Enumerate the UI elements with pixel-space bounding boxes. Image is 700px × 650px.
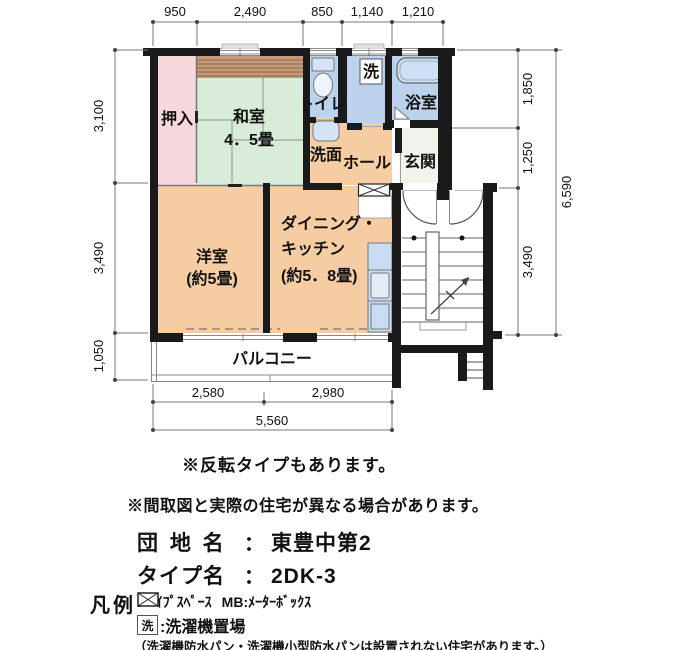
estate-name-label: 団 地 名 [137, 527, 237, 557]
note-may-differ: ※間取図と実際の住宅が異なる場合があります。 [127, 492, 488, 516]
window-toilet [310, 49, 336, 56]
label-toilet: トイレ [298, 96, 346, 113]
entrance-door-arc [403, 191, 436, 224]
wall-stair-right [483, 183, 493, 390]
stair-floor-line [420, 322, 466, 330]
toilet-tank [312, 58, 334, 71]
window-laundry [352, 49, 386, 56]
wall-stub-right [493, 331, 502, 339]
dim-left-1: 3,100 [91, 100, 106, 133]
wall-toilet-bottom-r [334, 117, 347, 123]
dim-top-4: 1,140 [351, 4, 384, 19]
stair-handrail [426, 232, 439, 320]
wall-dk-stair [392, 190, 401, 388]
pipe-space-icon [137, 592, 159, 607]
wall-western-dk [263, 183, 270, 333]
dim-right-3: 3,490 [520, 246, 535, 279]
toilet-bowl [314, 73, 333, 97]
wall-middle-1 [303, 183, 342, 190]
type-name-label: タイプ名 [137, 560, 237, 590]
wall-laundry-bath [385, 56, 392, 122]
label-hall: ホール [343, 154, 391, 172]
legend-laundry-text: :洗濯機置場 [160, 613, 245, 637]
exterior-steps [467, 362, 483, 378]
wall-bottom-3 [388, 333, 401, 342]
wall-door-stub [437, 183, 449, 200]
label-washitsu: 和室 [233, 107, 265, 126]
laundry-symbol-icon: 洗 [137, 615, 158, 635]
dim-bottom-total: 5,560 [256, 413, 289, 428]
label-balcony: バルコニー [232, 350, 312, 368]
dim-left-3: 1,050 [91, 340, 106, 373]
label-washitsu-size: 4．5畳 [224, 131, 274, 149]
washbasin [313, 121, 339, 141]
legend-title: 凡例 [90, 589, 136, 618]
dim-top-5: 1,210 [402, 4, 435, 19]
window-washitsu [220, 49, 260, 56]
label-washstand: 洗面 [310, 145, 342, 164]
legend-note: （洗濯機防水パン・洗濯機小型防水パンは設置されない住宅があります。） [134, 636, 553, 650]
wall-bottom-2 [283, 333, 317, 342]
dim-right-2: 1,250 [520, 142, 535, 175]
wall-bath-bottom-r [410, 120, 452, 128]
dim-bottom-2: 2,980 [312, 385, 345, 400]
label-dk-1: ダイニング・ [281, 214, 377, 233]
type-name-colon: ： [237, 560, 271, 589]
floor-plan: 押入 和室 4．5畳 トイレ 洗 浴室 洗面 ホール 玄関 洋室 (約5畳) ダ… [0, 0, 700, 445]
dim-bottom-1: 2,580 [192, 385, 225, 400]
estate-name-colon: ： [237, 527, 271, 556]
label-entrance: 玄関 [404, 152, 436, 171]
dim-right-total: 6,590 [559, 176, 574, 209]
label-dk-2: キッチン [281, 241, 345, 258]
wall-bottom-1 [150, 333, 183, 342]
kitchen-stove [371, 304, 389, 329]
type-name-value: 2DK-3 [271, 565, 337, 589]
dim-top-3: 850 [311, 4, 333, 19]
dim-top-1: 950 [164, 4, 186, 19]
wall-step-side [458, 353, 467, 381]
note-reverse-type: ※反転タイプもあります。 [182, 451, 396, 476]
type-name-row: タイプ名 ： 2DK-3 [137, 560, 337, 590]
stair-treads [402, 238, 483, 322]
wall-toilet-bottom-l [303, 117, 316, 123]
wall-stair-bottom [392, 345, 483, 353]
dim-left-2: 3,490 [91, 242, 106, 275]
label-oshiire: 押入 [161, 109, 193, 128]
label-western: 洋室 [196, 247, 228, 266]
label-dk-size: (約5．8畳) [281, 266, 357, 285]
wall-laundry-bottom-l [347, 123, 362, 130]
window-bath [402, 49, 418, 56]
wall-bath-bottom-l [385, 120, 394, 128]
room-hall-fill [342, 123, 392, 185]
wall-middle-2 [390, 183, 403, 190]
meter-box [359, 196, 392, 218]
wall-entrance-left [395, 128, 402, 153]
window-dk-balcony [317, 334, 388, 342]
kitchen-sink [371, 273, 389, 298]
dim-right-1: 1,850 [520, 73, 535, 106]
legend-meter-box-text: MB:ﾒｰﾀｰﾎﾞｯｸｽ [222, 592, 311, 612]
room-closet-wood-fill [197, 56, 303, 78]
label-laundry: 洗 [363, 62, 379, 81]
wall-left [150, 48, 158, 342]
estate-name-row: 団 地 名 ： 東豊中第2 [137, 527, 372, 557]
window-western-balcony [183, 334, 283, 342]
estate-name-value: 東豊中第2 [271, 527, 372, 557]
label-bath: 浴室 [405, 93, 437, 112]
label-western-size: (約5畳) [186, 269, 238, 288]
dim-top-2: 2,490 [234, 4, 267, 19]
wall-right [438, 48, 452, 190]
legend-row-laundry: 洗 :洗濯機置場 [137, 613, 245, 637]
legend-row-pipe-space: :ﾊﾟｲﾌﾟｽﾍﾟｰｽ MB:ﾒｰﾀｰﾎﾞｯｸｽ [137, 592, 311, 612]
neighbor-door-arc [450, 191, 483, 224]
floorplan-page: 押入 和室 4．5畳 トイレ 洗 浴室 洗面 ホール 玄関 洋室 (約5畳) ダ… [0, 0, 700, 650]
